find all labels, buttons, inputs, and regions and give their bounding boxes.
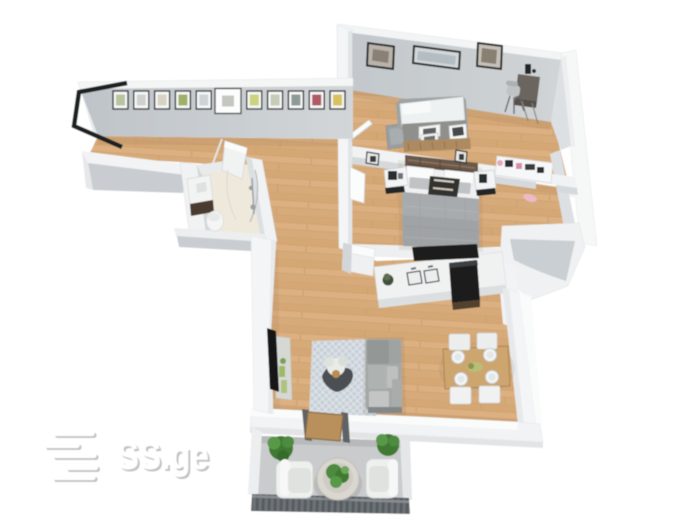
svg-text:SS.ge: SS.ge	[117, 435, 209, 478]
